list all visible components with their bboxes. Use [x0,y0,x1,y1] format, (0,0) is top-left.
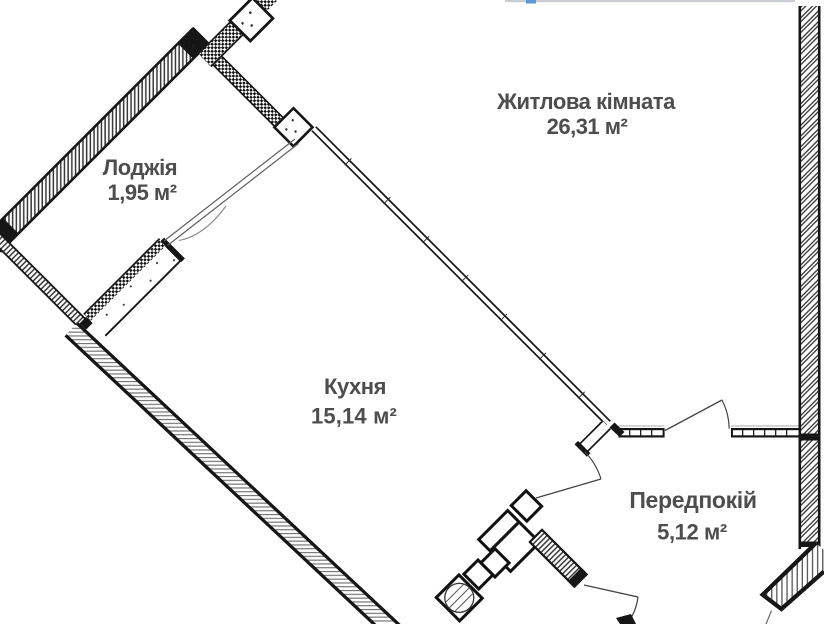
svg-text:1,95 м²: 1,95 м² [107,180,176,205]
svg-text:26,31 м²: 26,31 м² [547,114,628,139]
svg-text:Житлова кімната: Житлова кімната [496,89,676,114]
svg-text:Кухня: Кухня [324,374,386,399]
svg-text:Передпокій: Передпокій [629,487,756,513]
svg-text:Лоджія: Лоджія [103,155,177,180]
svg-text:5,12 м²: 5,12 м² [657,520,727,545]
svg-text:15,14 м²: 15,14 м² [311,404,397,429]
